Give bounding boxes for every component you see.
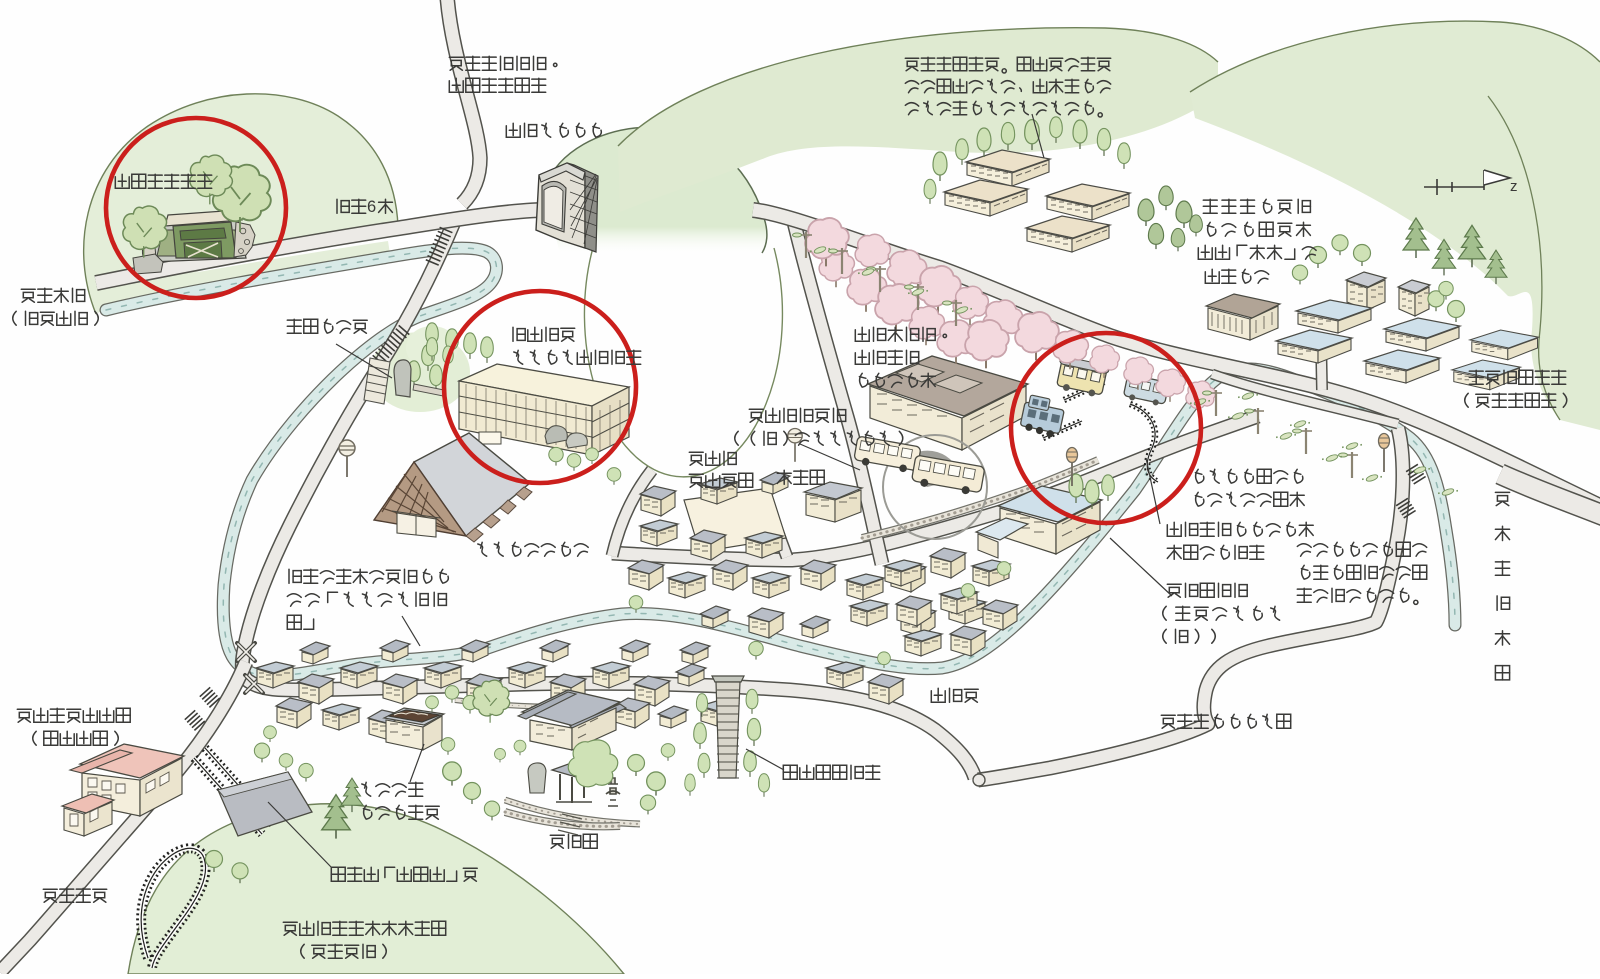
svg-text:6: 6 — [367, 198, 376, 216]
svg-text:z: z — [1510, 178, 1518, 195]
